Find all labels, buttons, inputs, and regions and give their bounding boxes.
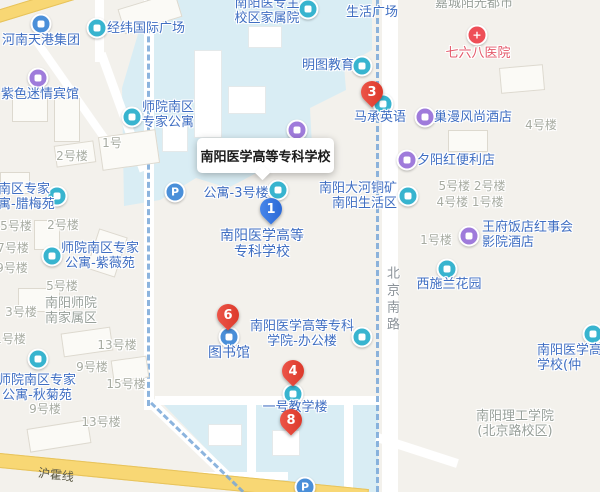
- building-footprint: [272, 430, 300, 456]
- life-plaza[interactable]: 生活广场: [346, 5, 398, 20]
- marker-number: 8: [280, 409, 302, 431]
- label-line: 南阳生活区: [319, 196, 397, 211]
- label-line: 南阳理工学院: [476, 409, 554, 424]
- apartment-building-3[interactable]: 公寓-3号楼: [204, 186, 269, 201]
- boundary-dash-left: [147, 0, 150, 406]
- label-line: 公寓-秋菊苑: [0, 388, 76, 403]
- plaza-icon-glyph: [94, 25, 101, 32]
- road: [344, 396, 353, 492]
- education-icon[interactable]: [352, 56, 373, 77]
- label-line: 南阳大河铜矿: [319, 181, 397, 196]
- label-line: 马承英语: [354, 110, 406, 125]
- label-line: 夕阳红便利店: [417, 153, 495, 168]
- school-icon-glyph: [590, 331, 597, 338]
- label-line: 2号楼: [56, 149, 88, 163]
- store-icon[interactable]: [397, 150, 418, 171]
- apartment-icon[interactable]: [28, 349, 49, 370]
- label-line: 南家属区: [45, 311, 97, 326]
- label-line: 校区家属院: [234, 11, 299, 26]
- wangfu-hotel-cinema[interactable]: 王府饭店红事会影院酒店: [482, 220, 573, 250]
- building-footprint: [54, 98, 80, 142]
- hotel-icon[interactable]: [415, 107, 436, 128]
- qiujuyuan-apartment[interactable]: 师院南区专家公寓-秋菊苑: [0, 373, 76, 403]
- label-line: 公寓-紫薇苑: [61, 256, 139, 271]
- school-icon-glyph: [290, 391, 297, 398]
- label-line: 经纬国际广场: [107, 21, 185, 36]
- label-line: 影院酒店: [482, 235, 573, 250]
- marker-8[interactable]: 8: [275, 404, 306, 435]
- label-line: 4号楼 1号楼: [436, 195, 503, 209]
- office-icon-glyph: [359, 334, 366, 341]
- label-line: 西施兰花园: [416, 277, 481, 292]
- label-line: 南阳医学高: [537, 343, 600, 358]
- label-line: 寓-腊梅苑: [0, 197, 55, 212]
- label-line: 师院南区专家: [61, 241, 139, 256]
- label-line: 15号楼: [106, 377, 145, 391]
- label-line: 明图教育: [302, 58, 354, 73]
- zhongjing-campus-label[interactable]: 南阳医学高学校(仲: [537, 343, 600, 373]
- label-line: 9号楼: [29, 402, 61, 416]
- building-number-label: 5号楼: [46, 279, 78, 293]
- infobox-arrow: [255, 165, 271, 181]
- school-icon-glyph: [294, 127, 301, 134]
- building-number-label: 9号楼: [29, 402, 61, 416]
- store-icon-glyph: [404, 157, 411, 164]
- building-footprint: [248, 26, 282, 48]
- label-line: 图书馆: [208, 345, 250, 361]
- xiyanghong-store[interactable]: 夕阳红便利店: [417, 153, 495, 168]
- building-number-label: 1号楼: [0, 332, 26, 346]
- label-line: 1号楼: [420, 233, 452, 247]
- chaoman-fashion-hotel[interactable]: 巢漫风尚酒店: [434, 110, 512, 125]
- apartment-icon-glyph: [35, 356, 42, 363]
- infobox-title: 南阳医学高等专科学校: [200, 146, 330, 165]
- label-line: 公寓-3号楼: [204, 186, 269, 201]
- building-number-label: 5号楼 2号楼: [438, 179, 505, 193]
- label-line: 5号楼 2号楼: [438, 179, 505, 193]
- library-icon-glyph: [226, 334, 233, 341]
- marker-1[interactable]: 1: [255, 193, 286, 224]
- plaza-icon[interactable]: [87, 18, 108, 39]
- nanyang-medical-college-label[interactable]: 南阳医学高等专科学校: [220, 228, 304, 260]
- nanyang-institute-of-technology: 南阳理工学院(北京路校区): [476, 409, 554, 439]
- apartment-icon-glyph: [49, 253, 56, 260]
- building-number-label: 13号楼: [97, 338, 136, 352]
- label-line: 王府饭店红事会: [482, 220, 573, 235]
- marker-number: 1: [260, 198, 282, 220]
- label-line: 专家公寓: [142, 115, 194, 130]
- building-number-label: 15号楼: [106, 377, 145, 391]
- label-line: 南区专家: [0, 182, 55, 197]
- label-line: 师院南区: [142, 100, 194, 115]
- jingwei-intl-plaza[interactable]: 经纬国际广场: [107, 21, 185, 36]
- office-building-label[interactable]: 南阳医学高等专科学院-办公楼: [250, 319, 354, 349]
- label-line: 巢漫风尚酒店: [434, 110, 512, 125]
- hotel-icon-glyph: [466, 233, 473, 240]
- parking-icon[interactable]: P: [165, 182, 186, 203]
- building-footprint: [448, 130, 488, 152]
- residence-icon[interactable]: [398, 186, 419, 207]
- parking-icon[interactable]: P: [295, 477, 316, 492]
- label-line: 紫色迷情宾馆: [1, 87, 79, 102]
- company-icon[interactable]: [31, 14, 52, 35]
- building-number-label: 5号楼: [0, 219, 32, 233]
- 768-hospital-label[interactable]: 七六八医院: [445, 46, 510, 61]
- dahe-copper-mine-living-area[interactable]: 南阳大河铜矿南阳生活区: [319, 181, 397, 211]
- building-number-label: 9号楼: [0, 261, 28, 275]
- label-line: 7号楼: [0, 241, 29, 255]
- marker-6[interactable]: 6: [212, 299, 243, 330]
- education-icon-glyph: [359, 63, 366, 70]
- label-line: 南阳医学高等专科: [250, 319, 354, 334]
- shiyuan-south-expert-apartment[interactable]: 师院南区专家公寓: [142, 100, 194, 130]
- apartment-icon[interactable]: [42, 246, 63, 267]
- label-line: 1号楼: [0, 332, 26, 346]
- hu-huo-line-label: 沪霍线: [37, 464, 75, 485]
- marker-number: 4: [282, 360, 304, 382]
- building-number-label: 3号楼: [5, 305, 37, 319]
- hotel-icon[interactable]: [28, 68, 49, 89]
- label-line: 嘉城阳光都市: [435, 0, 513, 11]
- building-number-label: 2号楼: [56, 149, 88, 163]
- building-number-label: 4号楼 1号楼: [436, 195, 503, 209]
- label-line: 专科学校: [220, 244, 304, 260]
- road-beijing-south: [382, 0, 398, 492]
- hotel-icon-glyph: [422, 114, 429, 121]
- mingtu-education[interactable]: 明图教育: [302, 58, 354, 73]
- residence-icon-glyph: [305, 6, 312, 13]
- henan-tiangang-group[interactable]: 河南天港集团: [2, 33, 80, 48]
- building-number-label: 7号楼: [0, 241, 29, 255]
- building-footprint: [228, 86, 266, 114]
- label-line: 13号楼: [81, 415, 120, 429]
- label-line: 4号楼: [525, 118, 557, 132]
- selected-poi-infobox[interactable]: 南阳医学高等专科学校: [197, 138, 334, 173]
- label-line: 9号楼: [0, 261, 28, 275]
- building-number-label: 1号楼: [420, 233, 452, 247]
- hospital-icon-glyph: +: [472, 30, 481, 41]
- residence-icon-glyph: [405, 193, 412, 200]
- label-line: 学院-办公楼: [250, 334, 354, 349]
- boundary-dash-right: [376, 0, 379, 492]
- label-line: 河南天港集团: [2, 33, 80, 48]
- jiacheng-sunshine-city: 嘉城阳光都市: [435, 0, 513, 11]
- apartment-icon-glyph: [275, 187, 282, 194]
- building-number-label: 4号楼: [525, 118, 557, 132]
- building-number-label: 13号楼: [81, 415, 120, 429]
- apartment-icon-glyph: [129, 114, 136, 121]
- garden-icon-glyph: [444, 266, 451, 273]
- building-footprint: [499, 64, 545, 94]
- building-number-label: 2号楼: [47, 218, 79, 232]
- marker-number: 6: [217, 304, 239, 326]
- label-line: (北京路校区): [476, 424, 554, 439]
- building-footprint: [194, 50, 222, 138]
- ziweiyuan-apartment[interactable]: 师院南区专家公寓-紫薇苑: [61, 241, 139, 271]
- label-line: 5号楼: [46, 279, 78, 293]
- zise-miqing-hotel[interactable]: 紫色迷情宾馆: [1, 87, 79, 102]
- label-line: 13号楼: [97, 338, 136, 352]
- label-line: 3号楼: [5, 305, 37, 319]
- marker-3[interactable]: 3: [356, 76, 387, 107]
- library-label[interactable]: 图书馆: [208, 345, 250, 361]
- company-icon-glyph: [38, 21, 45, 28]
- map-canvas[interactable]: 南阳医学高等专科学校 河南天港集团经纬国际广场紫色迷情宾馆师院南区专家公寓南区专…: [0, 0, 600, 492]
- label-line: 南阳师院: [45, 296, 97, 311]
- label-line: 南阳医学高等: [220, 228, 304, 244]
- lameiyuan-apartment[interactable]: 南区专家寓-腊梅苑: [0, 182, 55, 212]
- label-line: 学校(仲: [537, 358, 600, 373]
- building-footprint: [208, 424, 242, 446]
- label-line: 5号楼: [0, 219, 32, 233]
- hospital-icon[interactable]: +: [467, 25, 488, 46]
- yizhuan-main-campus-family-area[interactable]: 南阳医专主校区家属院: [234, 0, 299, 26]
- apartment-icon[interactable]: [122, 107, 143, 128]
- macheng-english[interactable]: 马承英语: [354, 110, 406, 125]
- building-number-label: 9号楼: [76, 360, 108, 374]
- label-line: 师院南区专家: [0, 373, 76, 388]
- nanyang-shiyuan-family-area: 南阳师院南家属区: [45, 296, 97, 326]
- parking-icon-glyph: P: [171, 187, 179, 198]
- label-line: 2号楼: [47, 218, 79, 232]
- label-line: 生活广场: [346, 5, 398, 20]
- hotel-icon[interactable]: [459, 226, 480, 247]
- marker-4[interactable]: 4: [277, 355, 308, 386]
- parking-icon-glyph: P: [301, 482, 309, 492]
- marker-number: 3: [361, 81, 383, 103]
- label-line: 9号楼: [76, 360, 108, 374]
- xishilan-garden[interactable]: 西施兰花园: [416, 277, 481, 292]
- office-icon[interactable]: [352, 327, 373, 348]
- beijing-south-road-label: 北京南路: [382, 266, 401, 334]
- label-line: 南阳医专主: [234, 0, 299, 11]
- hotel-icon-glyph: [35, 75, 42, 82]
- label-line: 七六八医院: [445, 46, 510, 61]
- building-number-label: 1号: [102, 136, 122, 150]
- school-icon[interactable]: [583, 324, 600, 345]
- label-line: 1号: [102, 136, 122, 150]
